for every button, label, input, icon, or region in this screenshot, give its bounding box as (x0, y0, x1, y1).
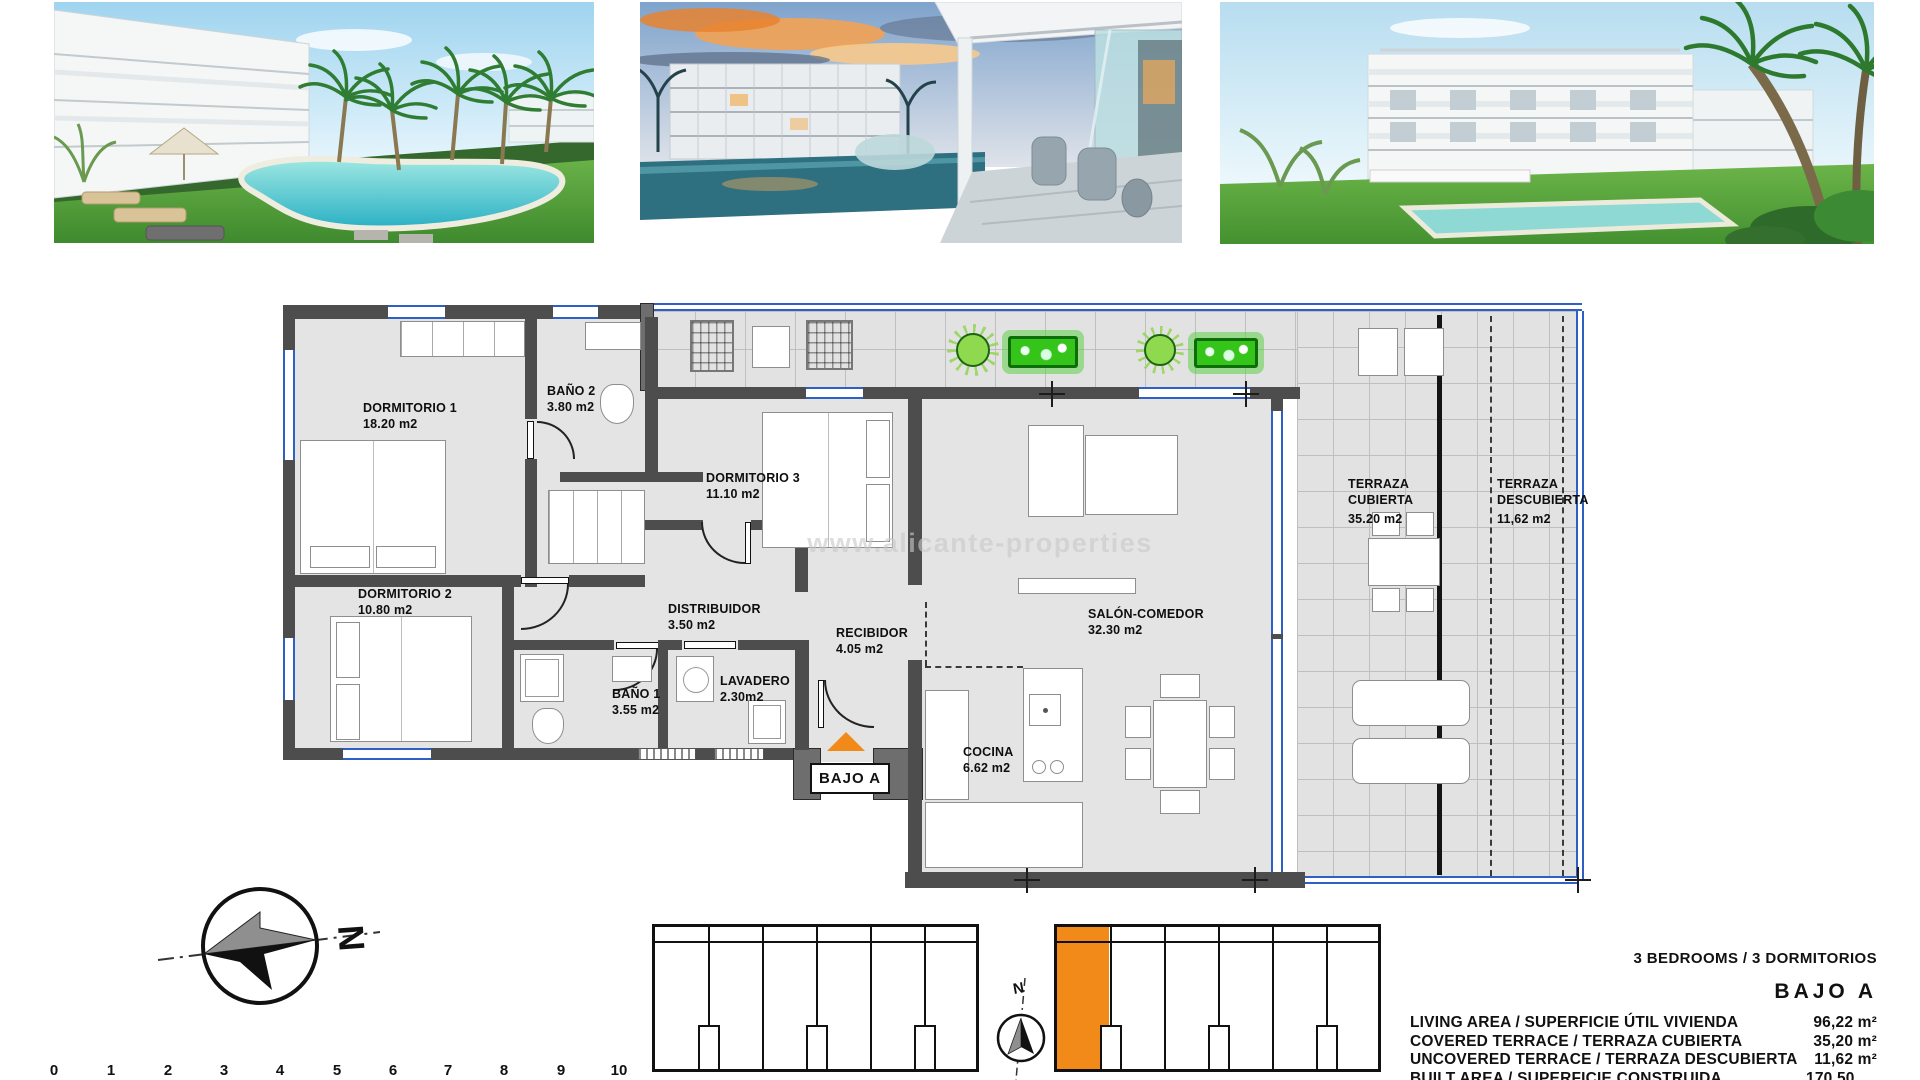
pillow (310, 546, 370, 568)
terrace-post-line (1437, 315, 1442, 875)
window (283, 350, 295, 460)
summary-row: COVERED TERRACE / TERRAZA CUBIERTA 35,20… (1410, 1033, 1877, 1052)
scale-tick: 1 (107, 1062, 115, 1079)
sideboard (1018, 578, 1136, 594)
summary-row-value: 35,20 m² (1813, 1033, 1877, 1052)
door-leaf (527, 421, 534, 459)
summary-row-value: 11,62 m² (1814, 1051, 1877, 1070)
wall-segment (645, 520, 703, 530)
door-leaf (616, 642, 660, 649)
wall-segment (738, 640, 795, 650)
terrace-glass-right (1576, 311, 1584, 881)
sun-lounger (1352, 738, 1470, 784)
room-label-terraza-cubierta: TERRAZA CUBIERTA35.20 m2 (1348, 476, 1430, 527)
wall-segment (525, 319, 537, 419)
tv-unit (1085, 435, 1178, 515)
kitchen-counter (925, 802, 1083, 868)
summary-row: LIVING AREA / SUPERFICIE ÚTIL VIVIENDA 9… (1410, 1014, 1877, 1033)
key-plan-block-left (652, 924, 979, 1072)
laundry-appliance (748, 700, 786, 744)
vent-grille (806, 320, 853, 370)
terrace-glass-top (645, 303, 1582, 311)
survey-cross (1039, 381, 1065, 407)
room-label-distribuidor: DISTRIBUIDOR3.50 m2 (668, 601, 761, 633)
sink-bowl (1032, 760, 1046, 774)
terrace-glass-bottom (1305, 876, 1578, 884)
scale-tick: 0 (50, 1062, 58, 1079)
room-label-recibidor: RECIBIDOR4.05 m2 (836, 625, 908, 657)
area-summary: 3 BEDROOMS / 3 DORMITORIOS BAJO A LIVING… (1410, 950, 1877, 1080)
toilet (600, 384, 634, 424)
scale-tick: 4 (276, 1062, 284, 1079)
survey-cross (1014, 867, 1040, 893)
entrance-door-leaf (818, 680, 824, 728)
room-label-salon-comedor: SALÓN-COMEDOR32.30 m2 (1088, 606, 1204, 638)
sofa (1028, 425, 1084, 517)
key-plan-compass: N (992, 978, 1052, 1080)
scale-bar: 0 1 2 3 4 5 6 7 8 9 10 (0, 1062, 700, 1080)
plant-icon (947, 324, 999, 376)
planter-box (1008, 336, 1078, 368)
window (283, 638, 295, 700)
terrace-cabinet (1358, 328, 1398, 376)
window (553, 305, 598, 319)
summary-row-label: COVERED TERRACE / TERRAZA CUBIERTA (1410, 1033, 1742, 1052)
sun-lounger (1352, 680, 1470, 726)
scale-tick: 3 (220, 1062, 228, 1079)
watermark: www.alicante-properties (778, 528, 1182, 559)
sliding-glass-door (1271, 408, 1283, 872)
window-vent (638, 748, 696, 760)
wall-segment (560, 472, 703, 482)
room-label-dormitorio-3: DORMITORIO 311.10 m2 (706, 470, 800, 502)
survey-cross (1242, 867, 1268, 893)
uncovered-terrace-boundary (1490, 316, 1492, 876)
shower-tray (520, 654, 564, 702)
dining-table (1153, 700, 1207, 788)
room-label-bano-2: BAÑO 23.80 m2 (547, 383, 595, 415)
compass-rose: N (140, 868, 390, 1018)
pillow (376, 546, 436, 568)
chair (1125, 748, 1151, 780)
entrance-unit-label: BAJO A (810, 763, 890, 794)
terrace-cabinet (1404, 328, 1444, 376)
strip-cabinet (752, 326, 790, 368)
pillow (336, 684, 360, 740)
window (343, 748, 431, 760)
kitchen-boundary-dashed (925, 666, 1023, 668)
terrace-table (1368, 538, 1440, 586)
scale-tick: 8 (500, 1062, 508, 1079)
summary-row-label: LIVING AREA / SUPERFICIE ÚTIL VIVIENDA (1410, 1014, 1738, 1033)
wall-segment (908, 660, 922, 872)
bathroom-sink (585, 322, 641, 350)
toilet (532, 708, 564, 744)
washing-machine (676, 656, 714, 702)
wall-segment (658, 640, 682, 650)
pillow (336, 622, 360, 678)
plant-icon (1136, 326, 1184, 374)
room-label-cocina: COCINA6.62 m2 (963, 744, 1014, 776)
chair (1209, 706, 1235, 738)
compass-north-label: N (330, 924, 373, 953)
survey-cross (1565, 867, 1591, 893)
wardrobe (548, 490, 645, 564)
key-plan-north-label: N (1012, 979, 1026, 998)
scale-tick: 5 (333, 1062, 341, 1079)
summary-row-label: UNCOVERED TERRACE / TERRAZA DESCUBIERTA (1410, 1051, 1798, 1070)
window-vent (714, 748, 764, 760)
room-label-bano-1: BAÑO 13.55 m2 (612, 686, 660, 718)
terrace-chair (1406, 588, 1434, 612)
scale-tick: 10 (611, 1062, 628, 1079)
wall-segment (645, 317, 658, 482)
room-label-terraza-descubierta: TERRAZA DESCUBIERTA11,62 m2 (1497, 476, 1591, 527)
wall-segment (1271, 399, 1283, 411)
summary-row: BUILT AREA / SUPERFICIE CONSTRUIDA PROYE… (1410, 1070, 1877, 1080)
bedrooms-line: 3 BEDROOMS / 3 DORMITORIOS (1410, 950, 1877, 967)
door-leaf (684, 641, 736, 649)
summary-row-value: 96,22 m² (1813, 1014, 1877, 1033)
wardrobe (400, 321, 525, 357)
room-label-dormitorio-1: DORMITORIO 118.20 m2 (363, 400, 457, 432)
scale-tick: 6 (389, 1062, 397, 1079)
window (388, 305, 445, 319)
chair (1209, 748, 1235, 780)
wall-segment (795, 640, 809, 750)
bathroom-sink (612, 656, 652, 682)
vent-grille (690, 320, 734, 372)
terrace-chair (1372, 588, 1400, 612)
key-plan-block-right (1054, 924, 1381, 1072)
summary-row-value: 170,50 m² (1806, 1070, 1877, 1080)
summary-row-label: BUILT AREA / SUPERFICIE CONSTRUIDA PROYE… (1410, 1070, 1806, 1080)
wall-segment (502, 587, 514, 748)
cooktop (1029, 694, 1061, 726)
planter-box (1194, 338, 1258, 368)
sink-bowl (1050, 760, 1064, 774)
wall-segment (514, 640, 614, 650)
door-leaf (521, 577, 569, 584)
wall-segment (1271, 634, 1283, 639)
wall-segment (525, 459, 537, 587)
wall-segment (569, 575, 645, 587)
entrance-arrow-icon (827, 732, 865, 751)
survey-cross (1233, 381, 1259, 407)
scale-tick: 7 (444, 1062, 452, 1079)
room-label-lavadero: LAVADERO2.30m2 (720, 673, 790, 705)
scale-tick: 2 (164, 1062, 172, 1079)
chair (1160, 674, 1200, 698)
brochure-sheet: www.alicante-properties DORMITORIO 118.2… (0, 0, 1920, 1080)
chair (1125, 706, 1151, 738)
pillow (866, 420, 890, 478)
unit-name: BAJO A (1410, 980, 1877, 1004)
uncovered-terrace-boundary (1562, 316, 1564, 876)
summary-row: UNCOVERED TERRACE / TERRAZA DESCUBIERTA … (1410, 1051, 1877, 1070)
chair (1160, 790, 1200, 814)
window (806, 387, 863, 399)
room-label-dormitorio-2: DORMITORIO 210.80 m2 (358, 586, 452, 618)
kitchen-boundary-dashed (925, 602, 927, 666)
scale-tick: 9 (557, 1062, 565, 1079)
